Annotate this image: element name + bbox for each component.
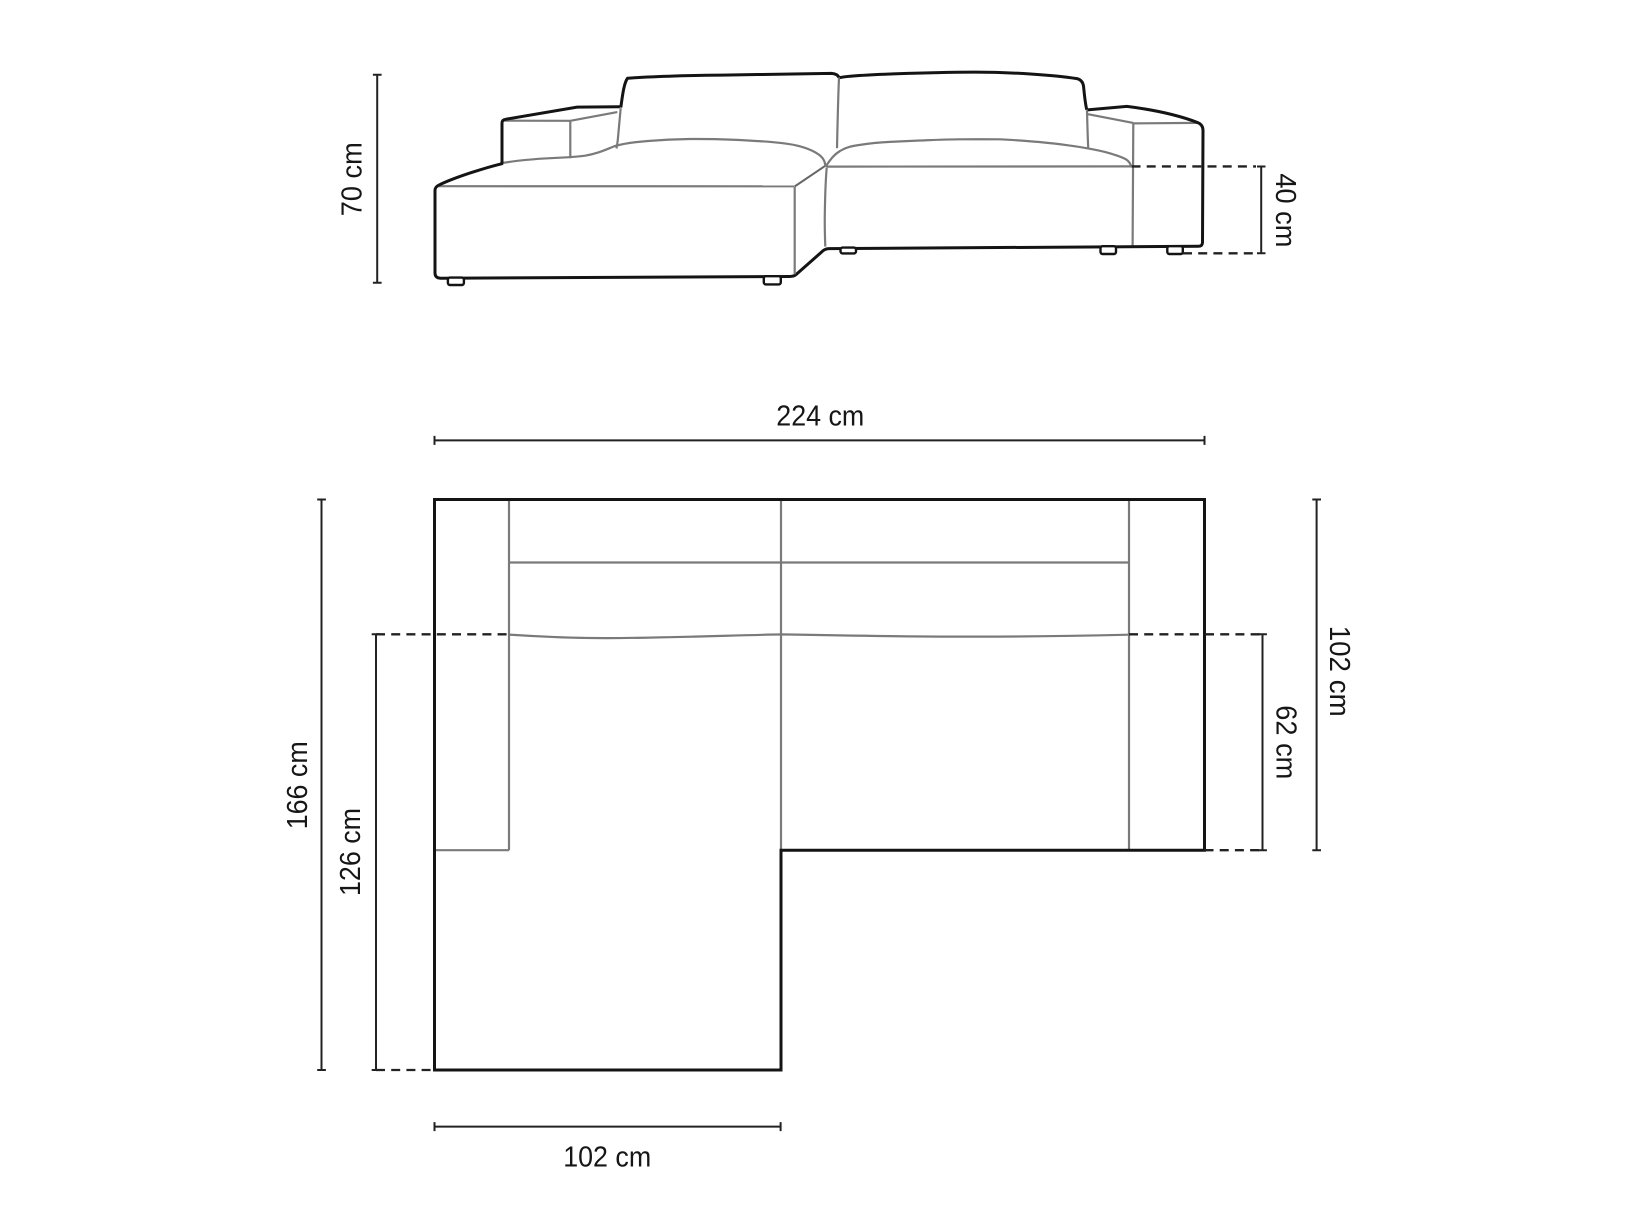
svg-text:224 cm: 224 cm	[776, 401, 864, 433]
svg-text:70 cm: 70 cm	[337, 142, 369, 216]
svg-text:102 cm: 102 cm	[563, 1142, 651, 1174]
svg-text:102 cm: 102 cm	[1323, 626, 1355, 717]
svg-text:62 cm: 62 cm	[1270, 705, 1302, 779]
svg-text:166 cm: 166 cm	[282, 741, 314, 829]
svg-text:40 cm: 40 cm	[1269, 173, 1301, 247]
svg-text:126 cm: 126 cm	[335, 808, 367, 896]
